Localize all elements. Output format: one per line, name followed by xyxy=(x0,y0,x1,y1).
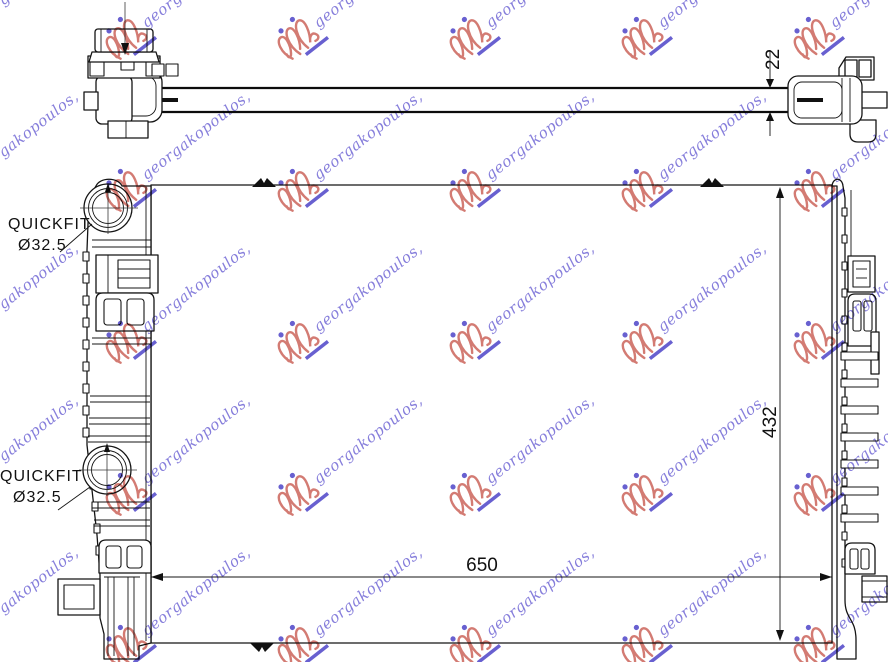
width-value: 650 xyxy=(466,555,498,576)
watermark-dot xyxy=(289,16,296,23)
neck-body xyxy=(96,76,132,124)
radiator-technical-drawing: 22 xyxy=(0,0,888,662)
watermark-text: georgakopoulos, xyxy=(482,87,598,183)
right-fitting xyxy=(788,57,887,142)
watermark-text: georgakopoulos, xyxy=(138,0,254,32)
watermark-tile: georgakopoulos, xyxy=(0,0,88,64)
quickfit-label-bottom: QUICKFIT Ø32.5 xyxy=(0,468,90,510)
quickfit-label-top: QUICKFIT Ø32.5 xyxy=(8,216,92,254)
watermark-tile: georgakopoulos, xyxy=(270,0,432,64)
watermark-dot xyxy=(793,27,800,34)
watermark-dot xyxy=(277,27,284,34)
height-value: 432 xyxy=(760,406,781,438)
watermark-text: georgakopoulos, xyxy=(0,87,82,183)
watermark-tile: georgakopoulos, xyxy=(614,0,776,64)
foot xyxy=(108,121,148,138)
side-tab xyxy=(84,92,98,110)
watermark-dot xyxy=(461,168,468,175)
cap-flange xyxy=(89,52,159,62)
watermark-tile: georgakopoulos, xyxy=(442,0,604,64)
watermark-dot xyxy=(117,168,124,175)
watermark-tile: georgakopoulos, xyxy=(0,78,88,216)
watermark-text: georgakopoulos, xyxy=(826,0,888,32)
watermark-text: georgakopoulos, xyxy=(482,0,598,32)
watermark-tile: georgakopoulos, xyxy=(786,0,888,64)
quickfit-title: QUICKFIT xyxy=(0,468,83,485)
watermark-dot xyxy=(449,27,456,34)
watermark-dot xyxy=(633,16,640,23)
watermark-dot xyxy=(805,168,812,175)
watermark-text: georgakopoulos, xyxy=(654,0,770,32)
leader-line xyxy=(58,487,90,510)
watermark-text: georgakopoulos, xyxy=(0,0,82,32)
right-tank-details xyxy=(841,190,887,602)
quickfit-title: QUICKFIT xyxy=(8,216,91,233)
quickfit-diameter: Ø32.5 xyxy=(13,489,62,506)
watermark-dot xyxy=(621,27,628,34)
right-pipe xyxy=(860,92,887,108)
watermark-text: georgakopoulos, xyxy=(654,87,770,183)
depth-value: 22 xyxy=(763,49,784,70)
dimension-depth: 22 xyxy=(763,49,784,136)
watermark-dot xyxy=(633,168,640,175)
watermark-dot xyxy=(461,16,468,23)
watermark-text: georgakopoulos, xyxy=(310,0,426,32)
watermark-dot xyxy=(289,168,296,175)
watermark-dot xyxy=(805,16,812,23)
watermark-dot xyxy=(117,16,124,23)
watermark-text: georgakopoulos, xyxy=(310,87,426,183)
